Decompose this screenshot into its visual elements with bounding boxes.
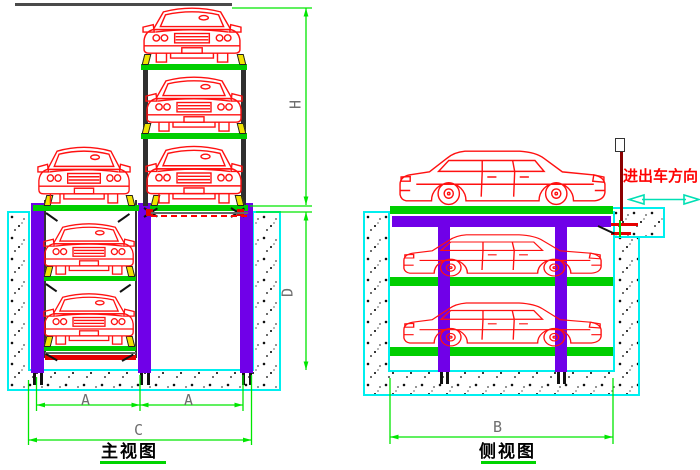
column-anchor — [140, 373, 143, 385]
dim-label-h: H — [289, 97, 304, 113]
car-front-view-top — [141, 3, 243, 64]
car-front-view-low — [144, 141, 244, 205]
platform-top — [141, 64, 247, 70]
antenna-pole — [620, 151, 623, 221]
dim-label-a2: A — [184, 393, 193, 408]
lift-column — [138, 203, 151, 373]
column-anchor — [40, 373, 43, 385]
column-anchor — [440, 372, 443, 384]
column-anchor — [446, 372, 449, 384]
entry-latch — [611, 223, 638, 226]
car-side-view-pit1 — [400, 230, 605, 278]
column-anchor — [563, 372, 566, 384]
side-platform-ground — [390, 206, 613, 214]
pallet-rail — [151, 212, 248, 214]
dim-label-a1: A — [81, 393, 90, 408]
column-anchor — [242, 373, 245, 385]
parking-system-drawing: 进出车方向 — [0, 0, 700, 470]
dim-label-b: B — [493, 420, 502, 435]
car-front-view-mid — [144, 72, 244, 133]
side-view-title: 侧视图 — [479, 444, 536, 461]
column-anchor — [33, 373, 36, 385]
car-front-view-pit2 — [42, 289, 136, 346]
car-side-view-pit2 — [400, 298, 605, 348]
direction-double-arrow-icon — [627, 192, 700, 207]
side-beam-ground — [392, 216, 611, 227]
column-anchor — [147, 373, 150, 385]
car-side-view-ground — [396, 145, 609, 207]
pallet-rail — [45, 352, 136, 354]
front-view-title-underline — [100, 461, 166, 464]
platform-mid — [141, 133, 247, 139]
dim-label-c: C — [134, 423, 143, 438]
latch-pin — [619, 220, 621, 237]
dim-label-d: D — [281, 285, 296, 301]
column-anchor — [249, 373, 252, 385]
side-platform-pit2 — [390, 347, 613, 356]
pallet-frame-dashed — [151, 215, 248, 217]
side-platform-pit1 — [390, 277, 613, 286]
front-view-title: 主视图 — [101, 444, 158, 461]
car-front-view-left-ground — [36, 142, 132, 205]
direction-label: 进出车方向 — [623, 169, 698, 184]
antenna-cap — [615, 138, 625, 152]
platform-pit2 — [44, 346, 136, 351]
side-view-title-underline — [481, 461, 536, 464]
column-anchor — [557, 372, 560, 384]
platform-pit1 — [44, 276, 136, 281]
car-front-view-pit1 — [42, 219, 136, 276]
lift-column — [240, 203, 253, 373]
